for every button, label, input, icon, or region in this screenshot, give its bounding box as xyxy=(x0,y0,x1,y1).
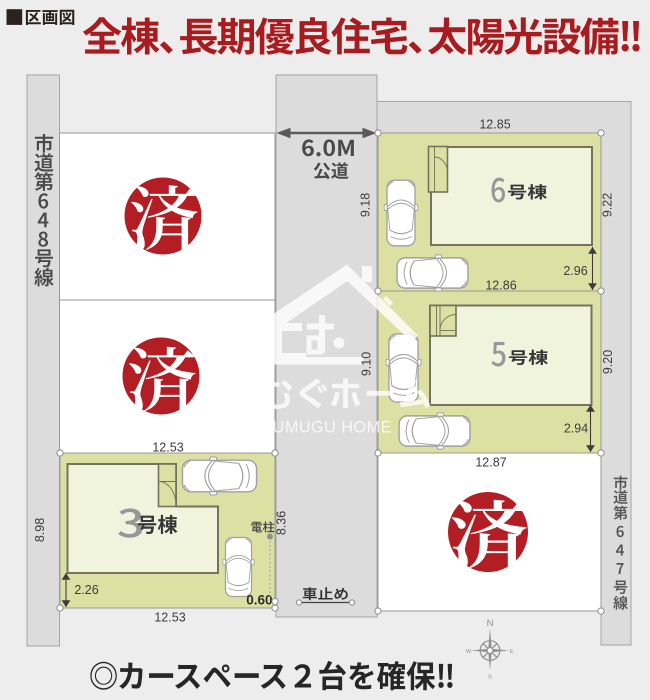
svg-text:9.18: 9.18 xyxy=(359,193,373,217)
svg-text:9.10: 9.10 xyxy=(360,352,374,376)
svg-text:12.85: 12.85 xyxy=(479,118,510,132)
svg-text:2.26: 2.26 xyxy=(74,583,98,597)
svg-text:2.96: 2.96 xyxy=(563,264,587,278)
svg-text:9.22: 9.22 xyxy=(601,193,615,217)
svg-text:12.53: 12.53 xyxy=(154,611,185,625)
svg-text:TSUMUGU HOME: TSUMUGU HOME xyxy=(251,419,392,437)
svg-text:8.98: 8.98 xyxy=(33,518,47,542)
svg-text:2.94: 2.94 xyxy=(564,422,588,436)
svg-text:12.86: 12.86 xyxy=(485,279,516,293)
svg-text:W: W xyxy=(466,649,472,655)
svg-text:12.53: 12.53 xyxy=(152,441,183,455)
svg-text:9.20: 9.20 xyxy=(601,350,615,374)
svg-text:S: S xyxy=(488,675,492,681)
svg-text:8.36: 8.36 xyxy=(275,511,289,535)
svg-text:N: N xyxy=(487,618,494,629)
svg-text:12.87: 12.87 xyxy=(475,456,506,470)
svg-text:E: E xyxy=(510,649,514,655)
svg-text:0.60: 0.60 xyxy=(246,593,272,608)
